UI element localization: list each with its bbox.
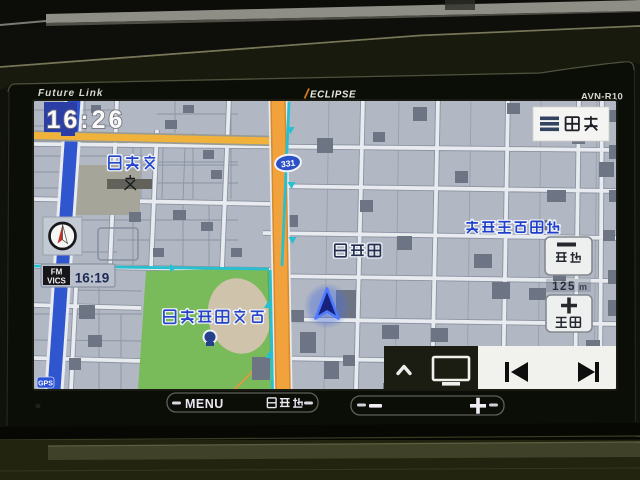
svg-text:16:19: 16:19 xyxy=(75,271,110,286)
svg-text:16:26: 16:26 xyxy=(47,106,126,134)
svg-text:FM: FM xyxy=(51,268,63,277)
svg-text:331: 331 xyxy=(280,158,296,170)
svg-text:125: 125 xyxy=(552,281,576,293)
svg-text:VICS: VICS xyxy=(47,277,66,286)
svg-text:ECLIPSE: ECLIPSE xyxy=(310,90,356,101)
svg-text:Future Link: Future Link xyxy=(38,88,103,99)
svg-text:MENU: MENU xyxy=(185,397,224,411)
svg-text:GPS: GPS xyxy=(38,381,53,388)
svg-text:m: m xyxy=(579,282,587,292)
